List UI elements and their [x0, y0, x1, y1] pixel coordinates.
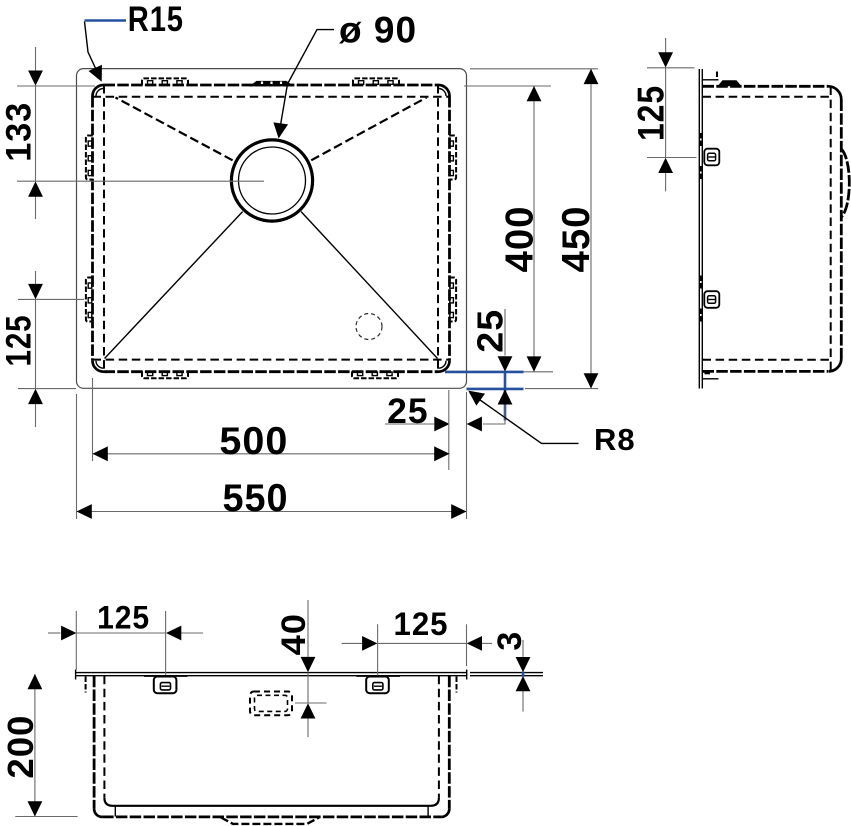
svg-text:40: 40	[275, 613, 313, 656]
svg-text:400: 400	[499, 206, 542, 273]
svg-text:125: 125	[394, 606, 449, 642]
svg-text:125: 125	[631, 85, 672, 141]
svg-text:133: 133	[0, 102, 39, 162]
svg-text:125: 125	[0, 315, 39, 367]
svg-text:R8: R8	[594, 422, 636, 457]
svg-text:R15: R15	[128, 0, 184, 39]
svg-text:25: 25	[470, 309, 511, 353]
svg-text:25: 25	[387, 392, 429, 431]
svg-text:450: 450	[555, 206, 598, 273]
svg-text:125: 125	[97, 600, 150, 636]
svg-text:550: 550	[223, 477, 289, 520]
svg-text:200: 200	[0, 715, 41, 779]
svg-text:ø 90: ø 90	[339, 10, 417, 51]
svg-text:3: 3	[491, 631, 529, 651]
svg-text:500: 500	[219, 420, 288, 463]
